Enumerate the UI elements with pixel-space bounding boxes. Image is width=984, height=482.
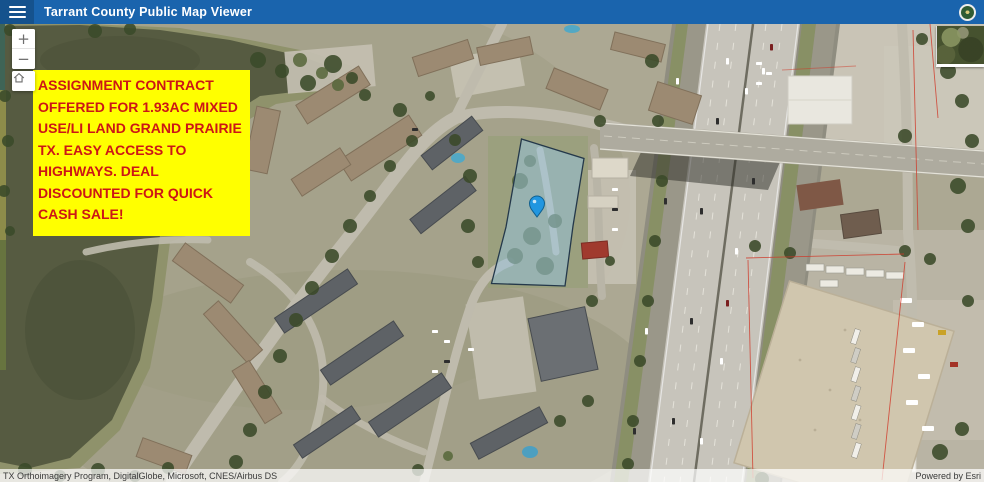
overview-map-thumbnail[interactable] bbox=[936, 26, 984, 67]
home-button[interactable] bbox=[12, 71, 35, 91]
page-title: Tarrant County Public Map Viewer bbox=[44, 5, 252, 19]
home-icon bbox=[12, 71, 26, 85]
app-header: Tarrant County Public Map Viewer bbox=[0, 0, 984, 24]
imagery-sources: TX Orthoimagery Program, DigitalGlobe, M… bbox=[3, 471, 277, 481]
hamburger-icon bbox=[9, 6, 26, 8]
powered-by-label: Powered by Esri bbox=[915, 471, 981, 481]
listing-annotation-note: ASSIGNMENT CONTRACT OFFERED FOR 1.93AC M… bbox=[33, 70, 250, 236]
home-control bbox=[12, 71, 35, 91]
attribution-bar: TX Orthoimagery Program, DigitalGlobe, M… bbox=[0, 469, 984, 482]
zoom-out-button[interactable]: − bbox=[12, 49, 35, 69]
hamburger-menu-button[interactable] bbox=[0, 0, 34, 24]
map-canvas[interactable]: + − ASSIGNMENT CONTRACT OFFERED FOR 1.93… bbox=[0, 24, 984, 482]
zoom-control: + − bbox=[12, 29, 35, 69]
zoom-in-button[interactable]: + bbox=[12, 29, 35, 49]
tarrant-county-seal-icon bbox=[959, 4, 976, 21]
